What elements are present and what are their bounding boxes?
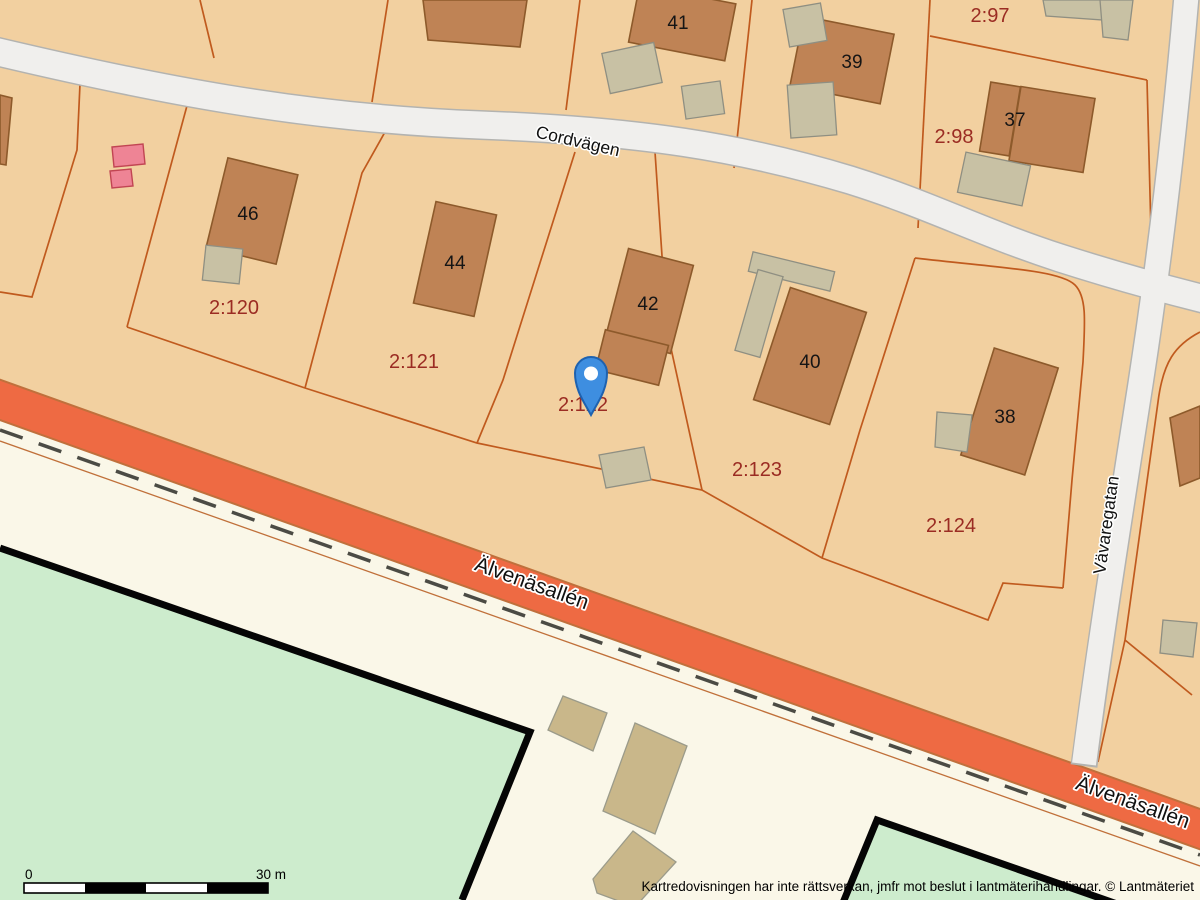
shed-39-a bbox=[783, 3, 827, 47]
house-number-41: 41 bbox=[667, 13, 688, 34]
house-number-40: 40 bbox=[799, 352, 820, 373]
shed-42 bbox=[599, 447, 651, 488]
shed-39-b bbox=[787, 82, 837, 138]
parcel-label-2-98: 2:98 bbox=[935, 126, 974, 148]
parcel-label-2-97: 2:97 bbox=[971, 5, 1010, 27]
scale-bar-start-label: 0 bbox=[25, 867, 33, 882]
parcel-label-2-123: 2:123 bbox=[732, 459, 782, 481]
garage-38 bbox=[935, 412, 972, 452]
house-number-39: 39 bbox=[841, 52, 862, 73]
house-top-middle bbox=[423, 0, 527, 47]
parcel-label-2-121: 2:121 bbox=[389, 351, 439, 373]
map-canvas[interactable]: Cordvägen Vävaregatan Älvenäsallén Älven… bbox=[0, 0, 1200, 900]
map-svg: Cordvägen Vävaregatan Älvenäsallén Älven… bbox=[0, 0, 1200, 900]
house-number-46: 46 bbox=[237, 204, 258, 225]
parcel-label-2-120: 2:120 bbox=[209, 297, 259, 319]
pink-building-2 bbox=[110, 169, 133, 188]
map-pin-hole bbox=[584, 367, 598, 381]
shed-southeast bbox=[1160, 620, 1197, 657]
parcel-label-2-124: 2:124 bbox=[926, 515, 976, 537]
house-number-44: 44 bbox=[444, 253, 466, 274]
shed-2-97-b bbox=[1100, 0, 1133, 40]
shed-41-b bbox=[681, 81, 724, 119]
shed-2-97-a bbox=[1043, 0, 1107, 20]
house-number-42: 42 bbox=[637, 294, 658, 315]
shed-46 bbox=[202, 245, 242, 284]
house-number-38: 38 bbox=[994, 407, 1015, 428]
attribution-text: Kartredovisningen har inte rättsverkan, … bbox=[642, 879, 1195, 894]
scale-bar-end-label: 30 m bbox=[256, 867, 286, 882]
pink-building-1 bbox=[112, 144, 145, 167]
house-number-37: 37 bbox=[1004, 110, 1025, 131]
